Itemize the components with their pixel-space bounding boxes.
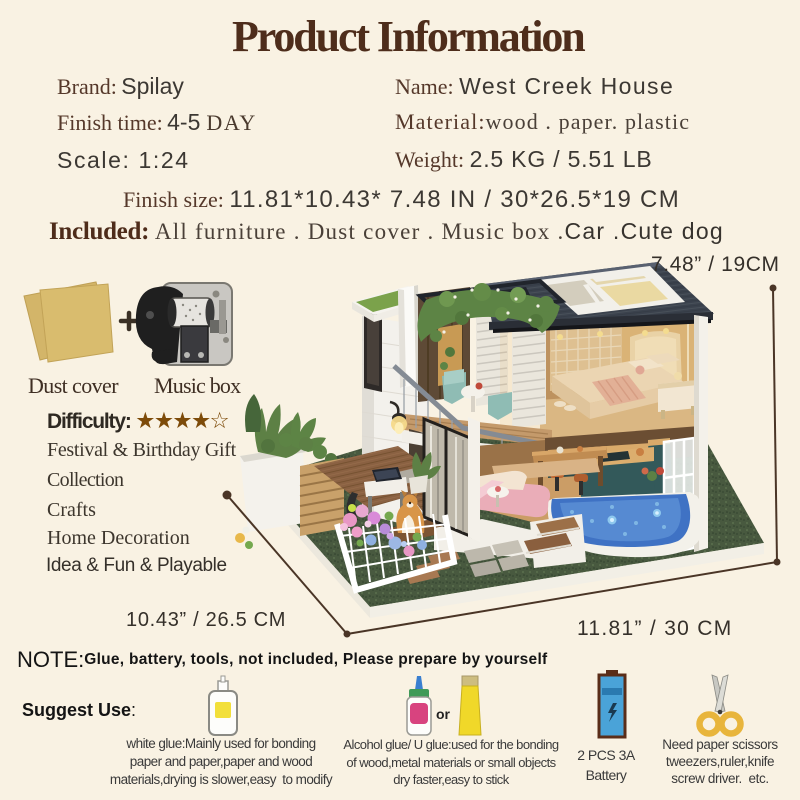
svg-text:or: or bbox=[436, 706, 451, 722]
